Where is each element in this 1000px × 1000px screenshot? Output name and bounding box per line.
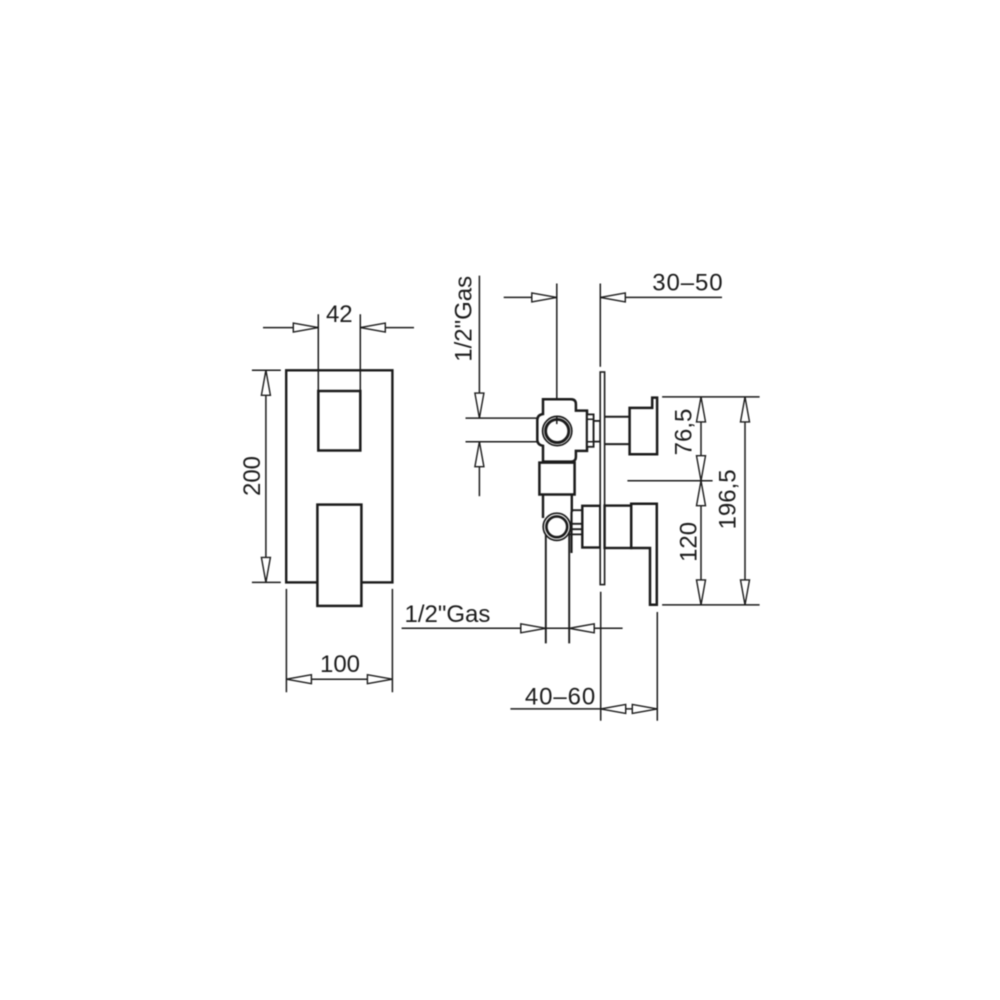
svg-text:120: 120: [675, 522, 702, 562]
svg-text:1/2"Gas: 1/2"Gas: [404, 601, 490, 628]
svg-text:200: 200: [239, 456, 266, 496]
svg-text:40–60: 40–60: [525, 684, 596, 711]
svg-text:100: 100: [320, 651, 360, 678]
svg-text:30–50: 30–50: [652, 270, 723, 297]
svg-text:196,5: 196,5: [714, 469, 741, 529]
svg-text:42: 42: [326, 301, 353, 328]
svg-text:76,5: 76,5: [671, 409, 698, 456]
svg-text:1/2"Gas: 1/2"Gas: [451, 276, 478, 362]
